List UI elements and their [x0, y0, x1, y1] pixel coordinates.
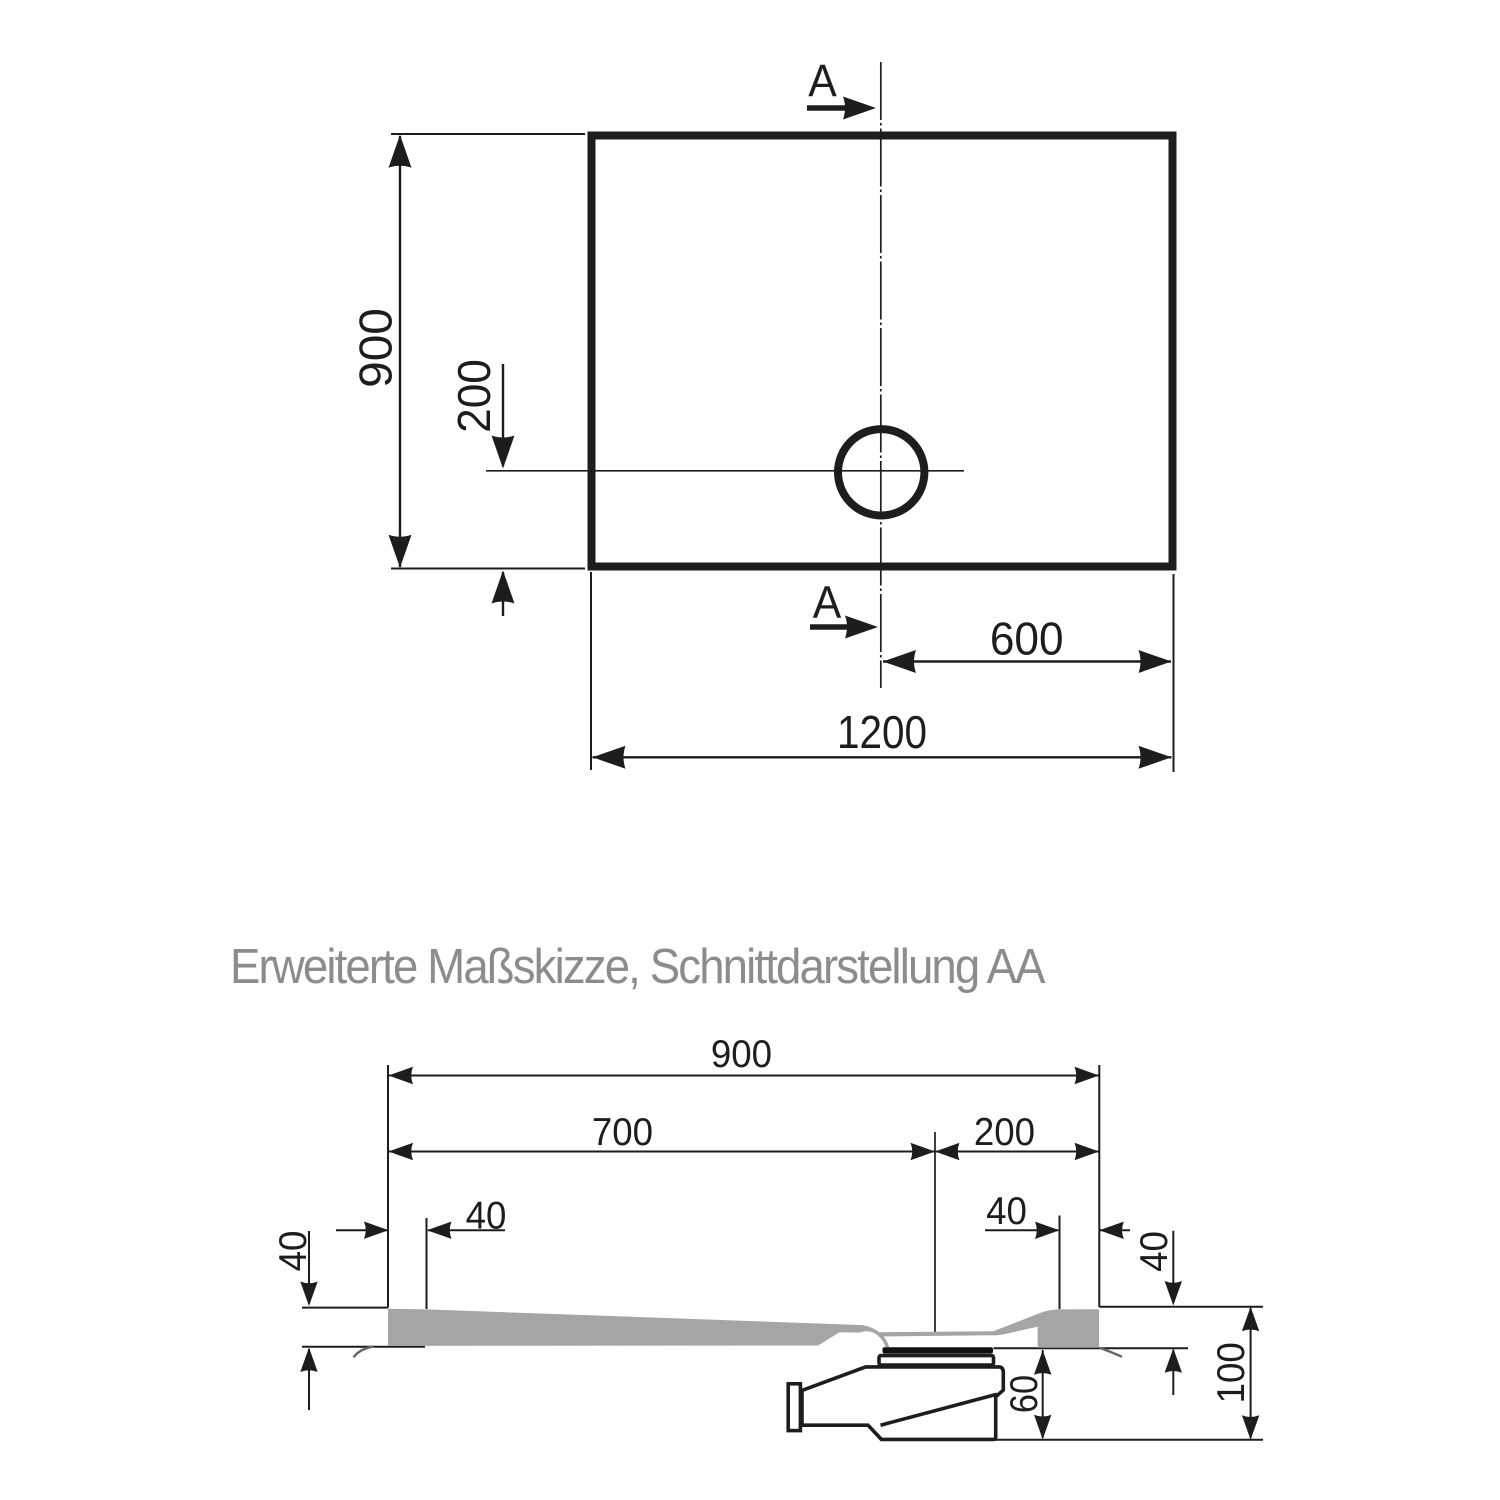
svg-text:A: A [813, 578, 842, 628]
svg-text:40: 40 [986, 1190, 1027, 1233]
svg-text:200: 200 [974, 1111, 1035, 1154]
svg-text:1200: 1200 [837, 708, 927, 759]
svg-text:600: 600 [990, 613, 1064, 665]
svg-text:40: 40 [272, 1231, 315, 1272]
svg-text:200: 200 [448, 359, 500, 433]
svg-text:A: A [808, 56, 837, 106]
svg-text:60: 60 [1002, 1375, 1046, 1413]
svg-text:700: 700 [592, 1111, 653, 1154]
svg-text:Erweiterte Maßskizze, Schnittd: Erweiterte Maßskizze, Schnittdarstellung… [230, 940, 1046, 995]
svg-text:40: 40 [466, 1194, 507, 1237]
svg-text:100: 100 [1210, 1342, 1253, 1403]
svg-text:900: 900 [711, 1033, 772, 1076]
svg-text:40: 40 [1133, 1231, 1176, 1272]
svg-text:900: 900 [350, 308, 401, 388]
